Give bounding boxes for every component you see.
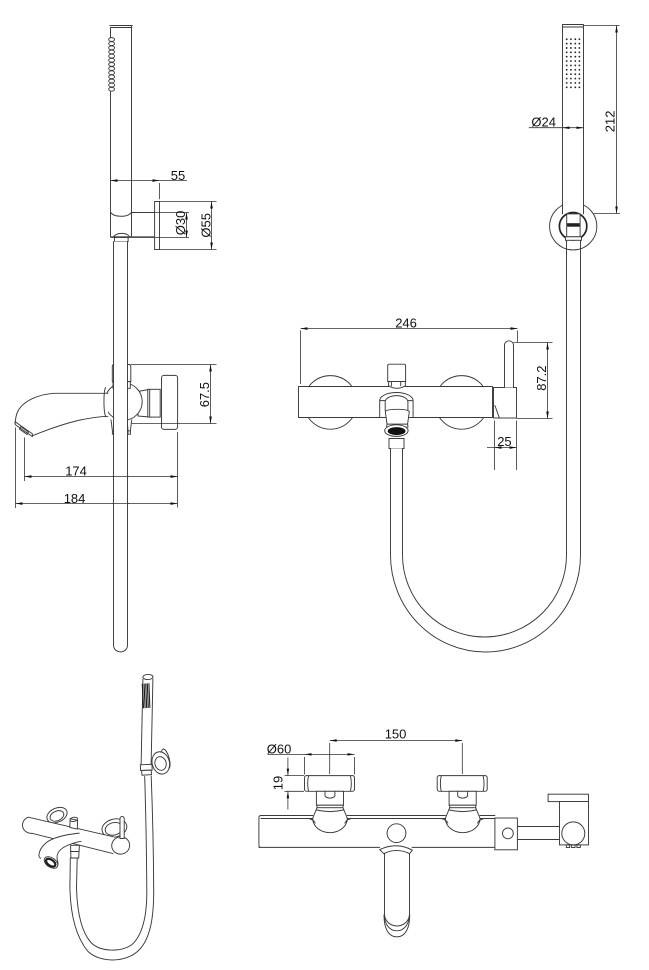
svg-text:Ø24: Ø24 <box>531 114 556 129</box>
svg-text:174: 174 <box>65 464 87 479</box>
svg-text:150: 150 <box>385 726 407 741</box>
svg-text:19: 19 <box>270 776 285 790</box>
svg-text:67.5: 67.5 <box>197 382 212 407</box>
svg-text:Ø55: Ø55 <box>198 213 213 238</box>
svg-text:212: 212 <box>602 110 617 132</box>
svg-text:184: 184 <box>64 491 86 506</box>
svg-text:87.2: 87.2 <box>534 365 549 390</box>
svg-text:246: 246 <box>395 316 417 331</box>
svg-text:25: 25 <box>497 434 511 449</box>
svg-text:55: 55 <box>171 168 185 183</box>
svg-text:Ø30: Ø30 <box>173 211 188 236</box>
svg-text:Ø60: Ø60 <box>267 741 292 756</box>
